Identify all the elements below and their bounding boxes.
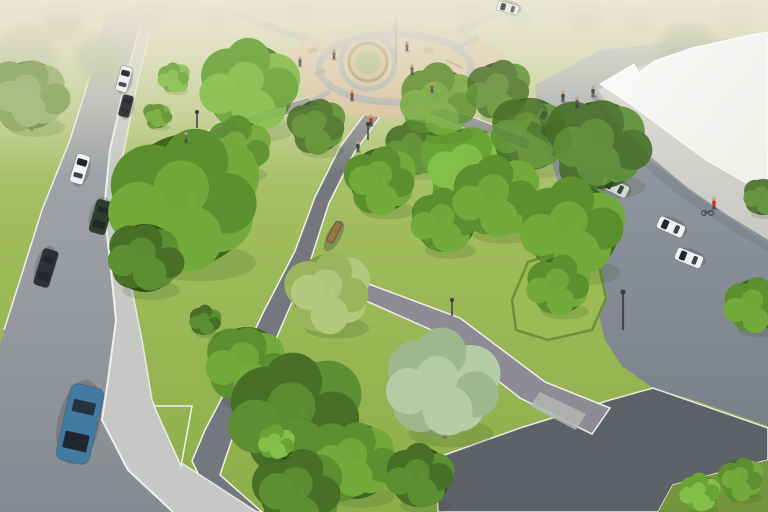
tree-canopy-highlight — [741, 289, 763, 311]
tree-canopy-highlight — [732, 467, 749, 484]
person-torso — [332, 52, 335, 56]
person-head — [712, 197, 716, 201]
tree-canopy-highlight — [304, 110, 326, 132]
person-torso — [298, 59, 301, 63]
tree-canopy-highlight — [127, 238, 156, 267]
person-head — [430, 82, 433, 85]
person-head — [406, 42, 409, 45]
tree-canopy-highlight — [198, 313, 210, 325]
tree-canopy-blob — [366, 184, 398, 216]
street-lamp-head — [620, 289, 625, 294]
person-head — [591, 86, 594, 89]
person-head — [356, 141, 359, 144]
tree-canopy-highlight — [691, 482, 706, 497]
person-head — [410, 64, 413, 67]
tree-canopy-highlight — [577, 119, 614, 156]
person-head — [575, 97, 578, 100]
person-head — [184, 132, 187, 135]
person-torso — [712, 200, 716, 205]
tree-canopy-highlight — [267, 382, 316, 431]
person-torso — [561, 94, 564, 99]
park-aerial-render — [0, 0, 768, 512]
tree-canopy-highlight — [152, 109, 162, 119]
person-head — [350, 90, 353, 93]
person-head — [298, 56, 301, 59]
tree-canopy-blob — [732, 481, 752, 501]
tree-canopy-highlight — [268, 433, 281, 446]
person-torso — [184, 135, 187, 140]
tree-canopy-highlight — [12, 75, 41, 104]
person-torso — [591, 89, 594, 94]
tree-canopy-highlight — [429, 204, 454, 229]
tree-canopy-highlight — [404, 459, 429, 484]
person-torso — [575, 100, 578, 105]
person-torso — [410, 67, 413, 71]
tree-canopy-highlight — [511, 112, 541, 142]
tree-canopy-blob — [547, 287, 575, 315]
render-viewport — [0, 0, 768, 512]
tree-canopy-highlight — [549, 201, 588, 240]
tree-canopy-highlight — [477, 174, 509, 206]
tree-canopy-highlight — [167, 70, 179, 82]
person-head — [332, 49, 335, 52]
tree-canopy-blob — [743, 307, 768, 333]
street-lamp-head — [450, 298, 454, 302]
person-torso — [369, 118, 372, 123]
tree-canopy-blob — [305, 129, 331, 155]
person-torso — [430, 85, 433, 89]
tree-canopy-highlight — [420, 82, 449, 111]
tree-canopy-highlight — [335, 438, 367, 470]
tree-canopy-highlight — [485, 73, 509, 97]
tree-canopy-highlight — [279, 467, 313, 501]
street-lamp-head — [195, 110, 199, 114]
person-head — [561, 91, 564, 94]
person-torso — [350, 93, 353, 98]
tree-canopy-highlight — [545, 268, 569, 292]
tree-canopy-highlight — [365, 161, 392, 188]
tree-canopy-highlight — [416, 356, 458, 398]
tree-canopy-highlight — [154, 160, 209, 215]
tree-canopy-highlight — [310, 269, 342, 301]
person-torso — [356, 144, 359, 149]
tree-canopy-highlight — [227, 62, 264, 99]
person-head — [369, 115, 372, 118]
person-torso — [406, 44, 409, 48]
tree-canopy-blob — [311, 296, 349, 334]
